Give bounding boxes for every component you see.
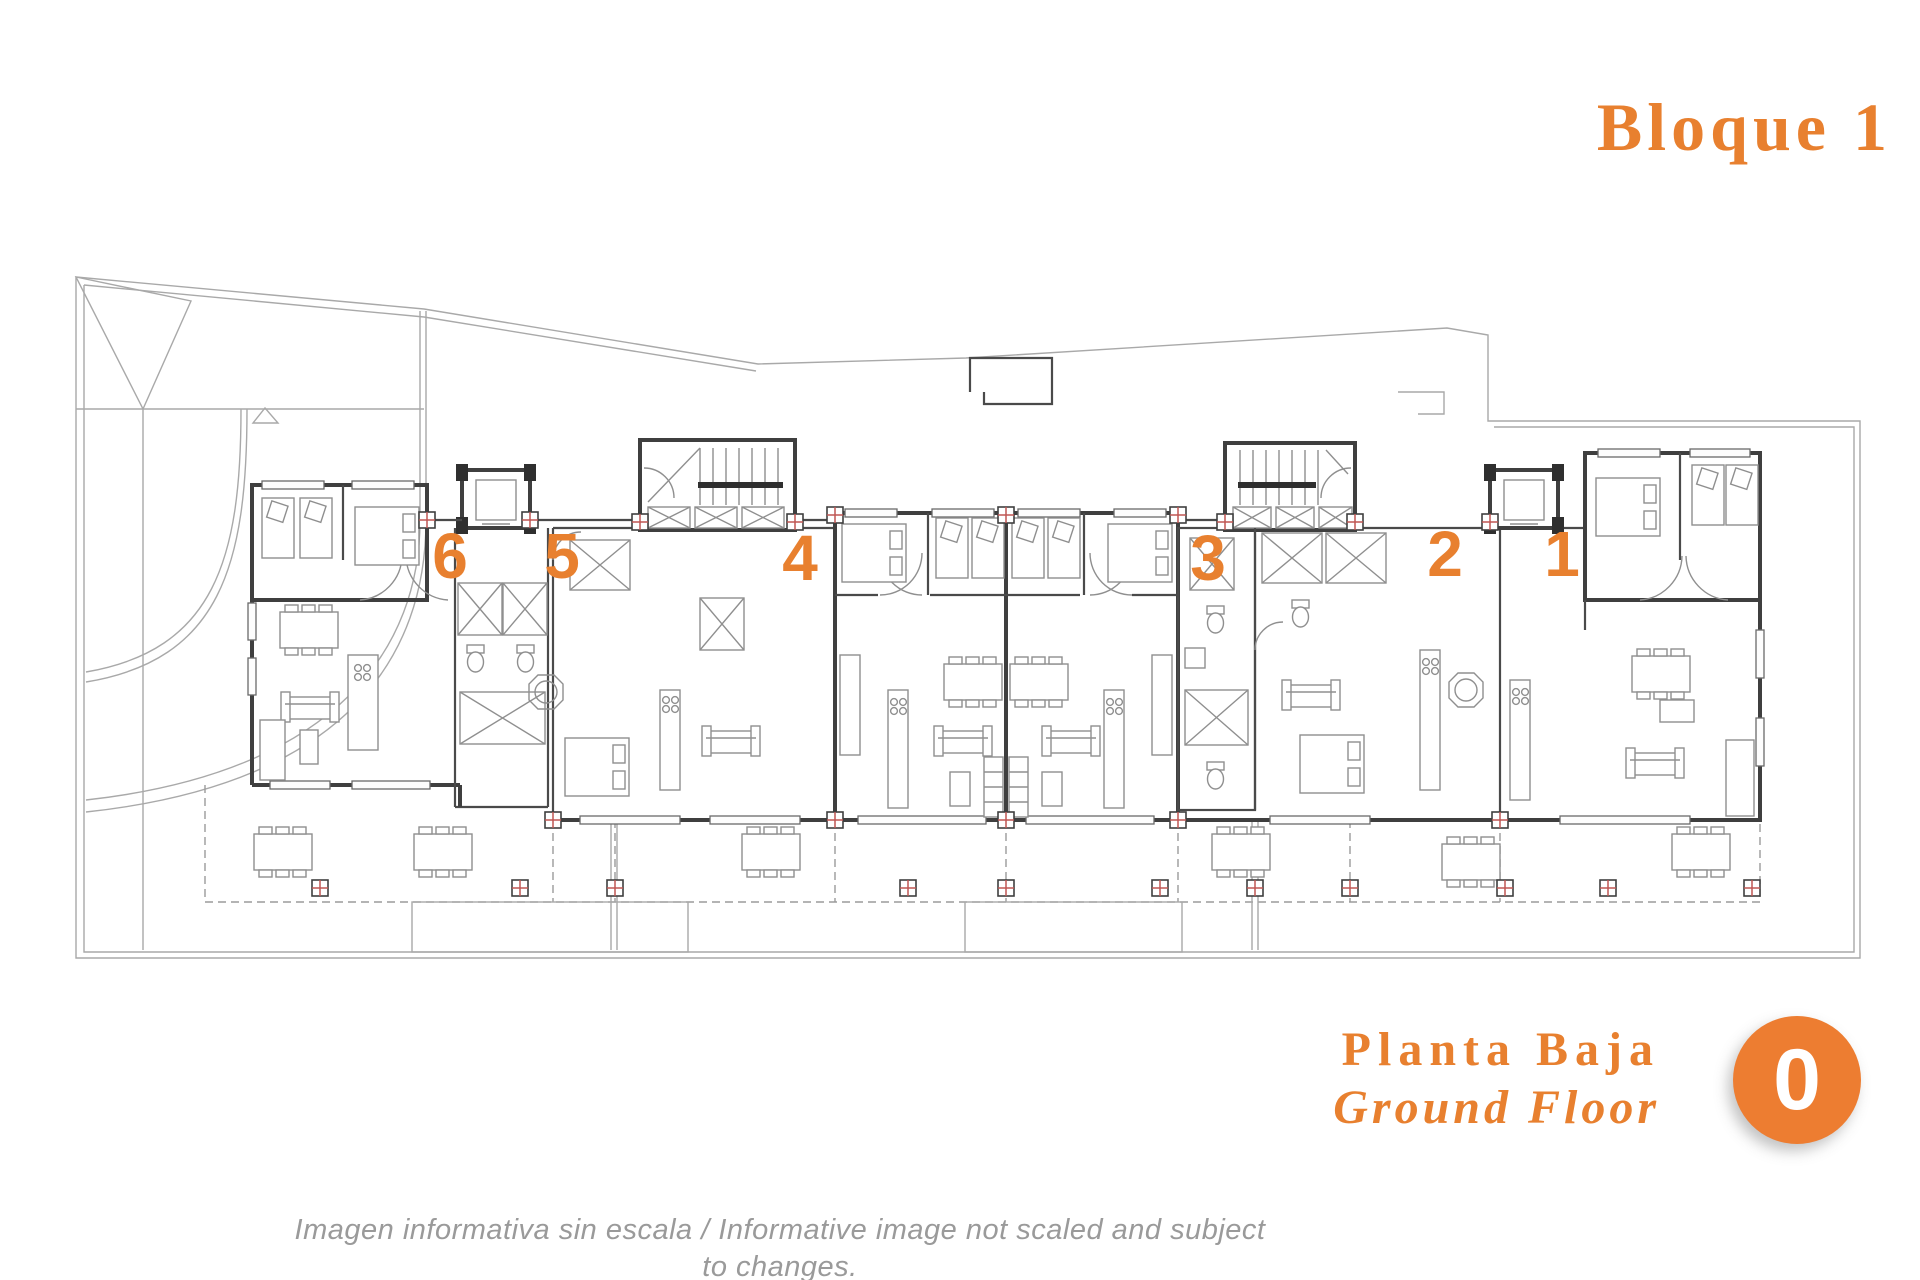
- single-bed: [300, 498, 332, 558]
- dining-table: [1010, 657, 1068, 707]
- apartment-4-label: 4: [782, 522, 818, 594]
- floor-number: 0: [1773, 1037, 1821, 1123]
- apartment-3-label: 3: [1190, 522, 1226, 594]
- toilet: [1292, 600, 1309, 627]
- sofa: [702, 726, 760, 756]
- block-title: Bloque 1: [1192, 88, 1892, 167]
- toilet: [517, 645, 534, 672]
- single-bed: [972, 518, 1004, 578]
- shower: [503, 583, 547, 635]
- floor-label-es: Planta Baja: [1060, 1022, 1660, 1077]
- disclaimer-line-1: Imagen informativa sin escala / Informat…: [290, 1212, 1270, 1280]
- sofa: [934, 726, 992, 756]
- apartment-1-unit: [1500, 449, 1764, 824]
- apartment-1-label: 1: [1544, 518, 1580, 590]
- terrace-table: [742, 827, 800, 877]
- round-table: [1449, 673, 1483, 707]
- stairwell-1: [640, 440, 795, 530]
- floor-label-en: Ground Floor: [1060, 1080, 1660, 1135]
- double-bed: [842, 524, 906, 582]
- terrace-table: [1212, 827, 1270, 877]
- stairwell-2: [1225, 443, 1355, 530]
- double-bed: [565, 738, 629, 796]
- single-bed: [936, 518, 968, 578]
- site-boundary: [76, 277, 1860, 958]
- toilet: [467, 645, 484, 672]
- single-bed: [1692, 465, 1724, 525]
- double-bed: [355, 507, 419, 565]
- terrace-table: [1672, 827, 1730, 877]
- sofa: [1626, 748, 1684, 778]
- apartment-2-label: 2: [1427, 518, 1463, 590]
- wardrobe: [700, 598, 744, 650]
- sofa: [1042, 726, 1100, 756]
- kitchen-counter: [660, 690, 680, 790]
- floor-number-badge: 0: [1733, 1016, 1861, 1144]
- single-bed: [262, 498, 294, 558]
- disclaimer: Imagen informativa sin escala / Informat…: [290, 1212, 1270, 1280]
- page: 6 5 4 3 2 1 Bloque 1 Planta Baja Ground …: [0, 0, 1920, 1280]
- double-bed: [1300, 735, 1364, 793]
- dining-table: [280, 605, 338, 655]
- terraces: [205, 785, 1760, 952]
- double-bed: [1108, 524, 1172, 582]
- single-bed: [1012, 518, 1044, 578]
- apartment-6-label: 6: [432, 520, 468, 592]
- double-bed: [1596, 478, 1660, 536]
- terrace-table: [414, 827, 472, 877]
- sofa: [281, 692, 339, 722]
- sofa: [1282, 680, 1340, 710]
- apartment-5-label: 5: [544, 520, 580, 592]
- terrace-table: [254, 827, 312, 877]
- apartments-4-3-block: [835, 509, 1178, 824]
- toilet: [1207, 762, 1224, 789]
- kitchen-counter: [348, 655, 378, 750]
- dining-table: [1632, 649, 1690, 699]
- boundary-notch: [970, 358, 1052, 404]
- single-bed: [1726, 465, 1758, 525]
- ramp-triangle: [76, 277, 191, 409]
- single-bed: [1048, 518, 1080, 578]
- toilet: [1207, 606, 1224, 633]
- dining-table: [944, 657, 1002, 707]
- terrace-table: [1442, 837, 1500, 887]
